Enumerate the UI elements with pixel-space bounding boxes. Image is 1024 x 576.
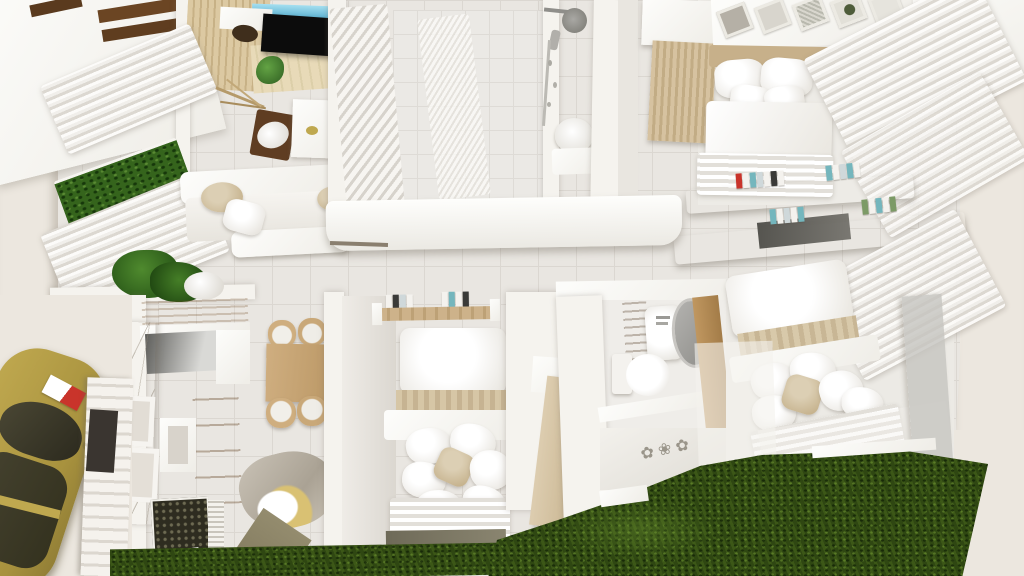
shelf-board — [378, 306, 496, 321]
art-print — [792, 0, 830, 32]
duvet-top — [400, 328, 506, 394]
rain-shower-head — [562, 8, 587, 33]
art-print — [754, 0, 792, 34]
wood-drawer-cabinet — [192, 375, 242, 505]
dining-table — [265, 343, 326, 402]
gold-decor — [306, 126, 318, 135]
toilet-bowl — [626, 354, 670, 396]
books — [769, 207, 804, 225]
stone-pillar — [81, 377, 134, 576]
mirror-backsplash — [145, 330, 225, 374]
faucet — [656, 316, 670, 319]
faucet — [656, 322, 668, 325]
tv — [261, 13, 337, 56]
water-drop — [553, 82, 557, 88]
shelf-bracket — [372, 303, 382, 325]
wall — [324, 292, 344, 564]
cabinet-niche-inner — [168, 426, 188, 464]
single-bed — [392, 322, 518, 550]
water-drop — [548, 60, 552, 66]
lawn-highlight — [560, 500, 720, 560]
floorplan-render: ✿ ❀ ✿ — [0, 0, 1024, 576]
dining-chair — [266, 398, 296, 428]
dining-chair — [297, 396, 327, 426]
shelf-bracket — [490, 299, 500, 321]
books — [442, 291, 469, 306]
garage-opening — [86, 409, 118, 473]
water-drop — [547, 102, 551, 107]
lawn-strip — [110, 543, 502, 576]
dining-chair — [298, 318, 326, 346]
art-print — [716, 2, 754, 39]
art-print-leaf — [830, 0, 868, 29]
wall-inner — [618, 0, 638, 208]
